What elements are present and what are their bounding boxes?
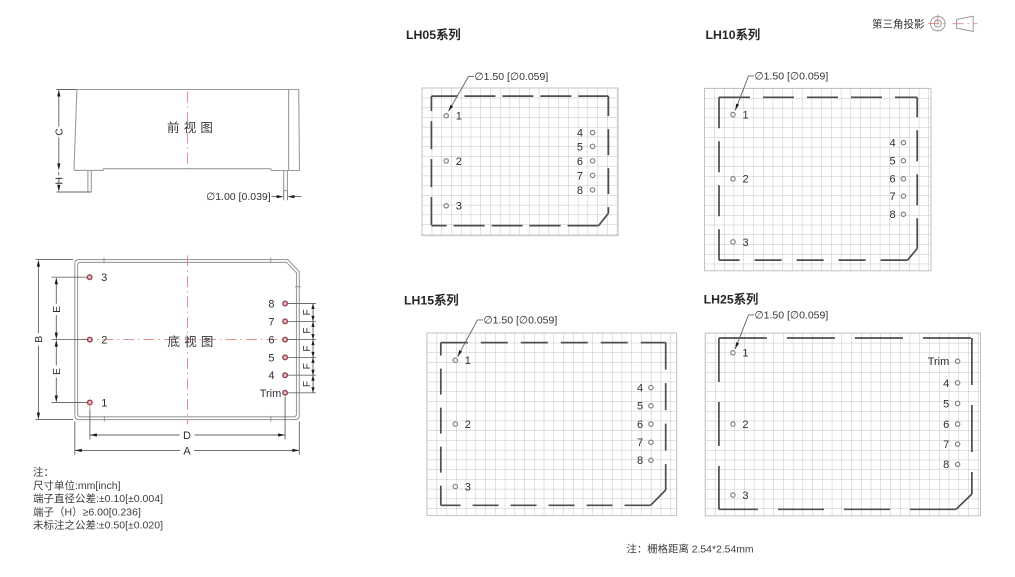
svg-text:8: 8 xyxy=(268,299,274,311)
svg-text:F: F xyxy=(302,381,313,387)
svg-text:C: C xyxy=(54,128,66,136)
svg-text:6: 6 xyxy=(889,174,895,186)
svg-text:5: 5 xyxy=(268,352,274,364)
svg-text:8: 8 xyxy=(889,209,895,221)
svg-text:2: 2 xyxy=(465,419,471,431)
svg-text:H: H xyxy=(54,177,66,185)
svg-text:7: 7 xyxy=(637,437,643,449)
svg-text:Trim: Trim xyxy=(260,388,282,400)
svg-text:6: 6 xyxy=(943,419,949,431)
svg-text:前视图: 前视图 xyxy=(167,120,217,135)
svg-text:2: 2 xyxy=(101,335,107,347)
svg-text:D: D xyxy=(183,430,191,442)
svg-text:4: 4 xyxy=(268,370,274,382)
svg-text:7: 7 xyxy=(943,439,949,451)
svg-text:F: F xyxy=(302,327,313,333)
svg-text:1: 1 xyxy=(742,348,748,360)
svg-text:B: B xyxy=(33,336,45,343)
svg-text:未标注之公差:±0.50[±0.020]: 未标注之公差:±0.50[±0.020] xyxy=(33,519,163,532)
svg-text:1: 1 xyxy=(456,111,462,123)
svg-text:∅1.00 [0.039]: ∅1.00 [0.039] xyxy=(206,191,271,203)
svg-text:A: A xyxy=(183,445,191,457)
svg-text:∅1.50 [∅0.059]: ∅1.50 [∅0.059] xyxy=(755,310,829,322)
svg-text:注：: 注： xyxy=(33,466,54,479)
svg-text:端子（H）≥6.00[0.236]: 端子（H）≥6.00[0.236] xyxy=(33,505,141,518)
svg-text:F: F xyxy=(302,309,313,315)
svg-text:端子直径公差:±0.10[±0.004]: 端子直径公差:±0.10[±0.004] xyxy=(33,492,163,505)
svg-text:注：栅格距离 2.54*2.54mm: 注：栅格距离 2.54*2.54mm xyxy=(627,543,754,556)
svg-text:Trim: Trim xyxy=(928,356,950,368)
svg-text:LH15系列: LH15系列 xyxy=(404,293,459,308)
svg-text:7: 7 xyxy=(577,170,583,182)
svg-text:LH25系列: LH25系列 xyxy=(704,292,759,307)
svg-text:8: 8 xyxy=(577,185,583,197)
svg-text:3: 3 xyxy=(465,481,471,493)
svg-text:3: 3 xyxy=(101,272,107,284)
svg-text:5: 5 xyxy=(943,398,949,410)
svg-text:5: 5 xyxy=(577,141,583,153)
svg-text:F: F xyxy=(302,345,313,351)
svg-text:8: 8 xyxy=(637,455,643,467)
svg-text:4: 4 xyxy=(577,128,583,140)
svg-text:尺寸单位:mm[inch]: 尺寸单位:mm[inch] xyxy=(33,479,121,492)
svg-text:3: 3 xyxy=(742,490,748,502)
svg-text:第三角投影: 第三角投影 xyxy=(872,17,925,30)
svg-text:4: 4 xyxy=(943,378,949,390)
svg-text:8: 8 xyxy=(943,459,949,471)
svg-text:∅1.50 [∅0.059]: ∅1.50 [∅0.059] xyxy=(484,315,558,327)
svg-text:5: 5 xyxy=(637,401,643,413)
svg-text:LH10系列: LH10系列 xyxy=(706,27,761,42)
svg-text:F: F xyxy=(302,363,313,369)
svg-text:2: 2 xyxy=(456,156,462,168)
svg-text:∅1.50 [∅0.059]: ∅1.50 [∅0.059] xyxy=(475,71,549,83)
svg-text:∅1.50 [∅0.059]: ∅1.50 [∅0.059] xyxy=(755,71,829,83)
svg-text:6: 6 xyxy=(577,156,583,168)
svg-text:E: E xyxy=(51,306,63,313)
svg-text:E: E xyxy=(51,368,63,375)
svg-text:1: 1 xyxy=(743,110,749,122)
svg-text:4: 4 xyxy=(889,138,895,150)
svg-text:2: 2 xyxy=(743,174,749,186)
svg-text:底视图: 底视图 xyxy=(168,334,218,349)
svg-text:1: 1 xyxy=(101,398,107,410)
svg-text:6: 6 xyxy=(268,335,274,347)
svg-text:7: 7 xyxy=(889,191,895,203)
svg-text:4: 4 xyxy=(637,383,643,395)
svg-text:3: 3 xyxy=(456,201,462,213)
svg-text:1: 1 xyxy=(465,355,471,367)
svg-text:2: 2 xyxy=(742,419,748,431)
svg-text:6: 6 xyxy=(637,419,643,431)
svg-text:LH05系列: LH05系列 xyxy=(406,27,461,42)
svg-text:5: 5 xyxy=(889,156,895,168)
svg-text:3: 3 xyxy=(743,237,749,249)
svg-text:7: 7 xyxy=(268,316,274,328)
